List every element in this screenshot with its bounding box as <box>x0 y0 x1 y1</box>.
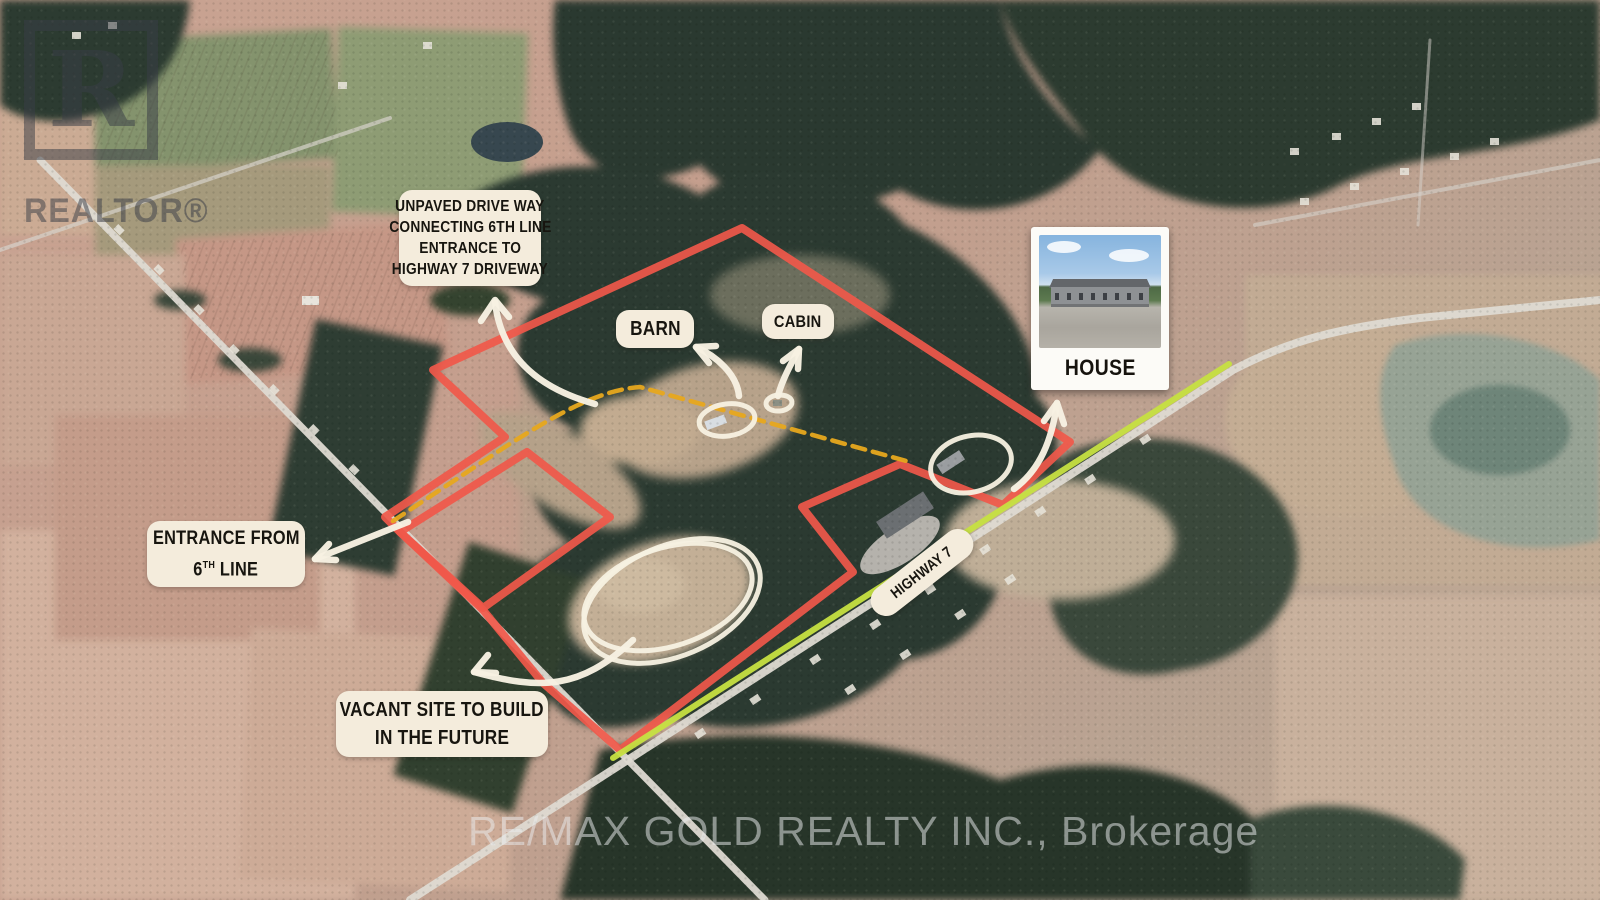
small-parcel-boundary <box>400 452 610 608</box>
cloud <box>1109 249 1149 262</box>
unpaved-driveway-label: UNPAVED DRIVE WAY CONNECTING 6TH LINE EN… <box>399 190 541 286</box>
cabin-label: CABIN <box>762 304 834 339</box>
realtor-watermark: R REALTOR® <box>24 20 158 160</box>
realtor-logo-letter: R <box>48 38 134 142</box>
unpaved-arrow <box>481 300 595 404</box>
entrance-label: ENTRANCE FROM 6TH LINE <box>147 521 305 587</box>
vacant-line-2: IN THE FUTURE <box>375 724 509 752</box>
vacant-site-circle <box>565 514 779 688</box>
brokerage-watermark: RE/MAX GOLD REALTY INC., Brokerage <box>468 808 1259 855</box>
barn-circle <box>697 400 757 439</box>
cabin-arrow <box>778 349 799 396</box>
house-windows <box>1055 293 1145 300</box>
unpaved-line-1: UNPAVED DRIVE WAY <box>395 196 544 217</box>
cloud <box>1047 241 1081 253</box>
barn-label: BARN <box>616 310 694 348</box>
barn-arrow <box>696 346 739 396</box>
house-caption: HOUSE <box>1031 352 1169 384</box>
realtor-logo-text: REALTOR® <box>24 192 214 231</box>
realtor-logo-box: R <box>24 20 158 160</box>
house-photo <box>1039 235 1161 348</box>
vacant-line-1: VACANT SITE TO BUILD <box>340 696 544 724</box>
aerial-map: UNPAVED DRIVE WAY CONNECTING 6TH LINE EN… <box>0 0 1600 900</box>
house-photo-card: HOUSE <box>1031 227 1169 390</box>
unpaved-line-2: CONNECTING 6TH LINE <box>389 217 551 238</box>
vacant-site-label: VACANT SITE TO BUILD IN THE FUTURE <box>336 691 548 757</box>
entrance-line-1: ENTRANCE FROM <box>153 525 300 552</box>
entrance-arrow <box>315 522 408 560</box>
unpaved-line-4: HIGHWAY 7 DRIVEWAY <box>392 259 548 280</box>
unpaved-line-3: ENTRANCE TO <box>419 238 521 259</box>
entrance-line-2: 6TH LINE <box>194 552 259 583</box>
annotation-overlay <box>0 0 1600 900</box>
